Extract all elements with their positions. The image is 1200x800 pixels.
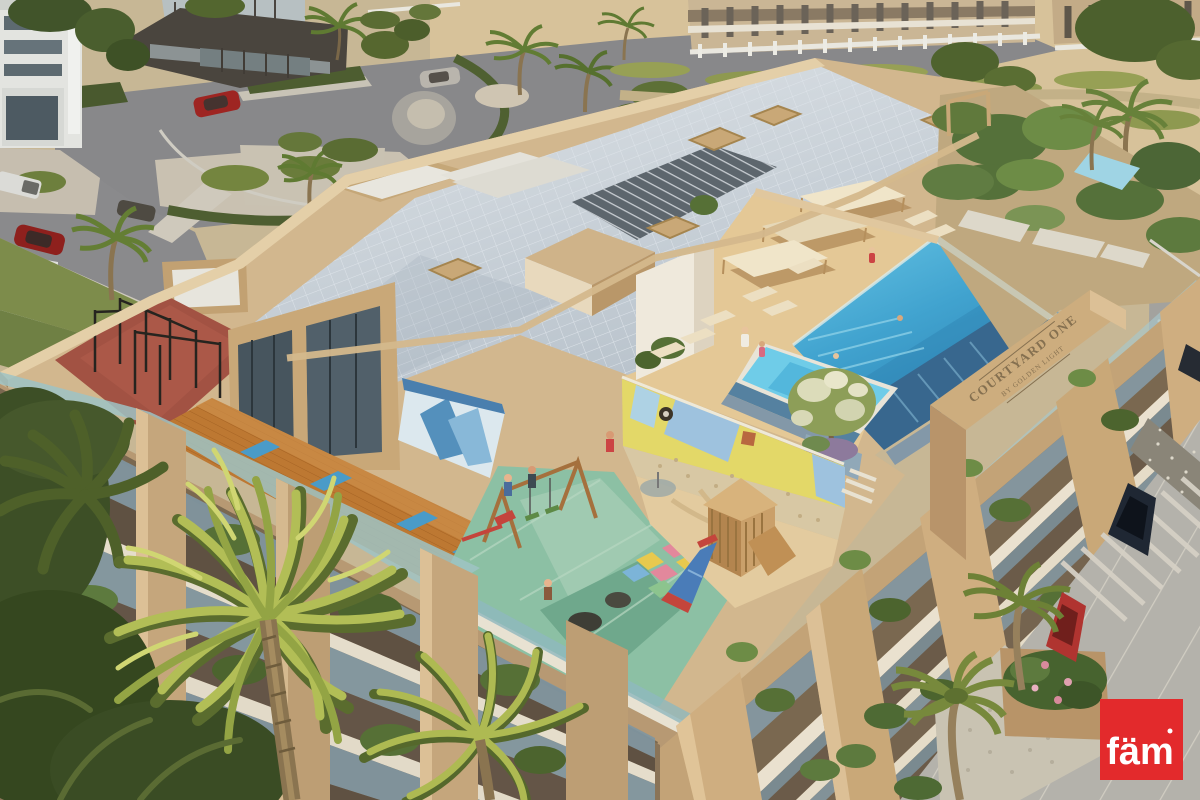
svg-text:fäm: fäm xyxy=(1106,731,1174,773)
